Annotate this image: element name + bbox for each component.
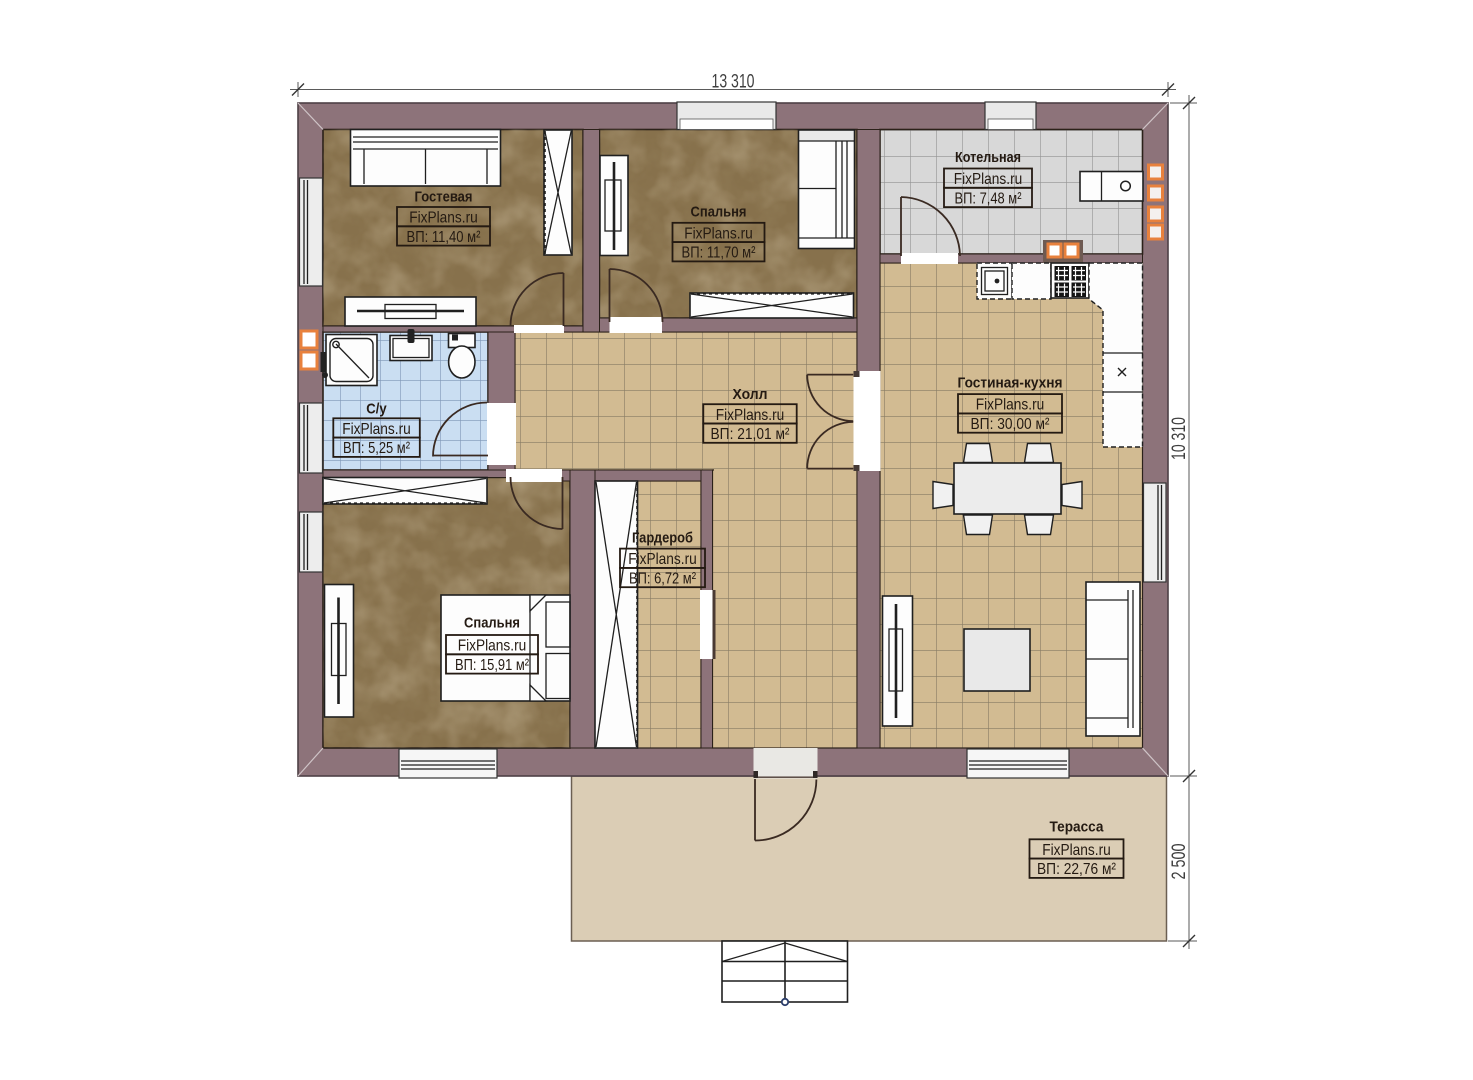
svg-text:Гостиная-кухня: Гостиная-кухня [958, 375, 1063, 392]
svg-text:FixPlans.ru: FixPlans.ru [342, 421, 411, 438]
svg-text:FixPlans.ru: FixPlans.ru [976, 397, 1045, 414]
svg-text:FixPlans.ru: FixPlans.ru [684, 225, 753, 242]
svg-text:Гардероб: Гардероб [632, 530, 693, 547]
svg-text:С/у: С/у [366, 401, 387, 418]
svg-text:ВП: 22,76 м²: ВП: 22,76 м² [1037, 861, 1117, 878]
svg-text:ВП: 11,70 м²: ВП: 11,70 м² [682, 245, 757, 262]
svg-text:Холл: Холл [733, 386, 768, 403]
svg-text:2 500: 2 500 [1169, 844, 1190, 880]
svg-text:Котельная: Котельная [955, 149, 1021, 166]
svg-text:ВП: 5,25 м²: ВП: 5,25 м² [343, 440, 411, 457]
svg-text:ВП: 30,00 м²: ВП: 30,00 м² [971, 416, 1051, 433]
svg-text:FixPlans.ru: FixPlans.ru [716, 407, 785, 424]
svg-text:Спальня: Спальня [691, 203, 747, 220]
svg-text:ВП: 15,91 м²: ВП: 15,91 м² [455, 657, 530, 674]
svg-text:Терасса: Терасса [1050, 819, 1105, 836]
svg-text:13 310: 13 310 [712, 72, 755, 93]
svg-text:ВП: 21,01 м²: ВП: 21,01 м² [711, 426, 791, 443]
svg-text:ВП: 11,40 м²: ВП: 11,40 м² [407, 229, 482, 246]
svg-text:10 310: 10 310 [1169, 417, 1190, 460]
svg-text:Гостевая: Гостевая [415, 189, 473, 206]
svg-text:ВП: 6,72 м²: ВП: 6,72 м² [629, 571, 697, 588]
svg-text:ВП: 7,48 м²: ВП: 7,48 м² [955, 190, 1023, 207]
svg-text:FixPlans.ru: FixPlans.ru [954, 171, 1023, 188]
svg-text:FixPlans.ru: FixPlans.ru [628, 551, 697, 568]
svg-text:Спальня: Спальня [464, 615, 520, 632]
svg-text:FixPlans.ru: FixPlans.ru [1042, 842, 1111, 859]
svg-text:FixPlans.ru: FixPlans.ru [409, 210, 478, 227]
svg-text:FixPlans.ru: FixPlans.ru [458, 638, 527, 655]
